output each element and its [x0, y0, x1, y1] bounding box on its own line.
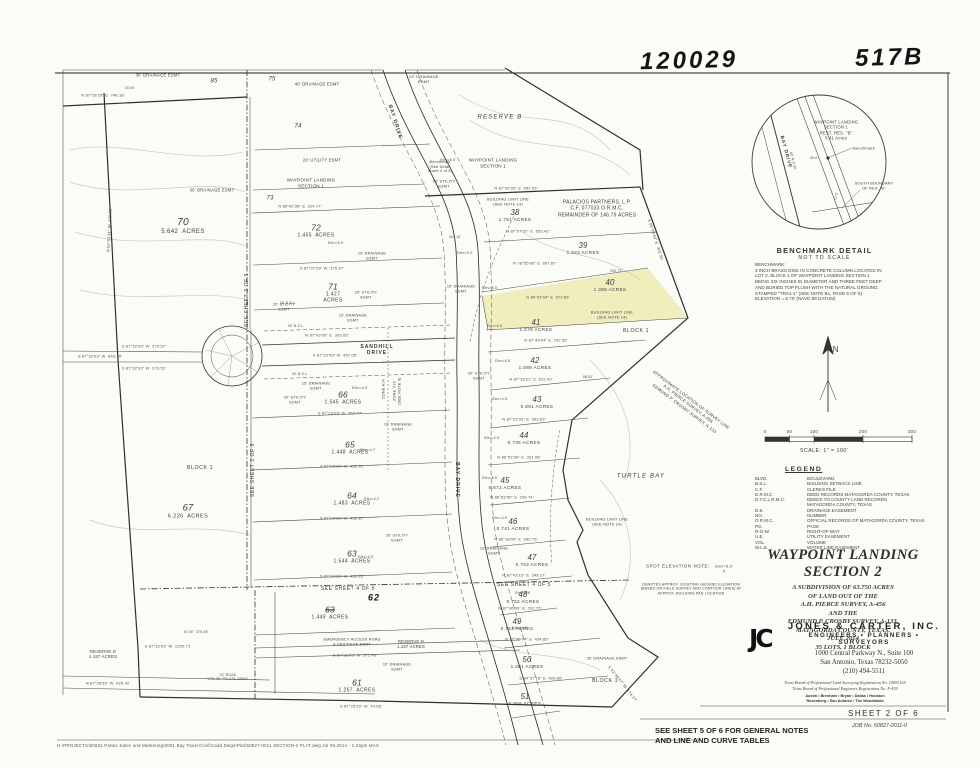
map-label: WAYPOINT LANDING SECTION 1 — [469, 157, 518, 168]
map-label: SEE SHEET 3 OF 5 — [244, 273, 250, 327]
legend-rows: BLVD.BOULEVARDB.S.L.BUILDING SETBACK LIN… — [755, 476, 940, 550]
benchmark-detail-subtitle: NOT TO SCALE — [752, 255, 897, 261]
map-label: Elev=6.5' — [495, 359, 511, 363]
lot-acreage: 1.323 ACRES — [567, 250, 600, 256]
map-label: 20' UTILITY ESMT — [468, 371, 490, 380]
map-label: WAYPOINT LANDING SECTION 1 REST. RES. "B… — [814, 120, 859, 141]
map-label: 30' DRAINAGE ESMT — [190, 187, 235, 192]
plat-title: WAYPOINT LANDING SECTION 2 — [742, 547, 944, 581]
map-label: N 87°42'26" E 652.05' — [494, 187, 537, 192]
lot-label: 381.751 ACRES — [499, 209, 532, 223]
map-label: 75 — [268, 76, 275, 84]
map-label: Elev=4.5' — [492, 397, 508, 401]
benchmark-detail-title: BENCHMARK DETAIL — [752, 246, 897, 255]
map-label: RESERVE B — [477, 114, 522, 122]
lot-number: 41 — [520, 319, 553, 327]
map-label: 25' B.S.L. — [292, 372, 309, 376]
map-label: 35' DRAINAGE ESMT — [587, 657, 628, 662]
map-label: Elev=6.3' X — [715, 564, 732, 573]
map-label: N 87°36'09" E 292.75' — [498, 607, 541, 612]
lot-acreage: 1.578 ACRES — [520, 327, 553, 333]
map-label: 30' DRAINAGE ESMT — [136, 72, 181, 77]
map-label: S 87°23'29" W 452.87' — [320, 517, 364, 522]
map-label: N 87°43'04" E 702.55' — [524, 339, 567, 344]
legend-abbr: D.T.C.L.R.M.C. — [755, 497, 807, 508]
file-path-footer: H:\PROJECTS\50832 Pattas Sales and Marke… — [57, 743, 379, 748]
lot-acreage: 1.267 ACRES — [338, 687, 375, 693]
map-label: 20' UTILITY ESMT — [284, 395, 306, 404]
lot-number: 46 — [497, 518, 530, 526]
lot-acreage: 0.881 ACRES — [521, 404, 554, 410]
job-number: JOB No. 50827-0011-0 — [852, 723, 907, 729]
lot-label: 490.751 ACRES — [501, 618, 534, 632]
map-label: 263.13' — [449, 235, 461, 239]
map-label: N — [833, 345, 839, 355]
scale-tick: 100 — [810, 429, 818, 435]
map-label: 20' B.S.L. — [280, 301, 297, 305]
lot-number: 63 — [311, 605, 348, 614]
map-label: BUILDING LIMIT LINE (SEE NOTE 14) — [487, 197, 529, 206]
map-label: APPROXIMATE LOCATION OF SURVEY LINE A.H.… — [645, 369, 730, 439]
map-label: 40.00' 376.55' — [183, 630, 208, 634]
map-label: 25' B.S.L. — [288, 324, 305, 328]
lot-acreage: 1.427 ACRES — [323, 291, 342, 304]
lot-label: 631.449 ACRES — [311, 605, 348, 620]
map-label: 10' DRAINAGE ESMT — [383, 662, 411, 671]
lot-label: 661.545 ACRES — [324, 390, 361, 405]
firm-block: JC JONES & CARTER, INC. ENGINEERS • PLAN… — [745, 621, 945, 704]
map-label: Elev=6.5' — [440, 158, 456, 162]
map-label: 73 — [266, 195, 273, 203]
scale-tick: 50 — [787, 429, 793, 435]
map-label: RESERVE D 1.187 ACRES — [89, 649, 117, 660]
lot-acreage: 0.751 ACRES — [501, 626, 534, 632]
map-label: S 87°25'29" W 74.58' — [340, 705, 382, 710]
map-label: ZONE V19 (SEE NOTE 9) — [392, 377, 401, 404]
map-label: PALACIOS PARTNERS, L.P. C.F. 077033 O.R.… — [558, 200, 636, 219]
map-label: 45.6' — [810, 156, 818, 160]
map-label: Elev=6.3' — [457, 251, 473, 255]
map-label: N 87°07'37" E 653.42' — [506, 230, 549, 235]
see-sheet-note: SEE SHEET 5 OF 6 FOR GENERAL NOTES AND L… — [655, 726, 808, 746]
map-label: N 87°28'29" E 748.18' — [81, 94, 124, 99]
lot-number: 67 — [168, 504, 208, 514]
legend: LEGEND BLVD.BOULEVARDB.S.L.BUILDING SETB… — [755, 466, 940, 550]
map-label: N 87°36'04" E 434.85' — [505, 638, 548, 643]
lot-label: 430.881 ACRES — [521, 396, 554, 410]
lot-acreage: 1.448 ACRES — [331, 449, 368, 455]
lot-acreage: 1.301 ACRES — [511, 664, 544, 670]
firm-cities-2: Rosenberg • San Antonio • The Woodlands — [745, 699, 945, 704]
lot-label: 401.388 ACRES — [594, 279, 627, 293]
scale-caption: SCALE: 1" = 100' — [800, 448, 848, 454]
map-label: 62 — [368, 592, 380, 603]
map-label: ZONE A14 — [382, 379, 387, 399]
lot-acreage: 1.455 ACRES — [297, 232, 334, 238]
lot-acreage: 0.736 ACRES — [508, 440, 541, 446]
lot-number: 48 — [507, 591, 540, 599]
lot-number: 44 — [508, 432, 541, 440]
lot-label: 711.427 ACRES — [323, 282, 342, 303]
lot-acreage: 1.545 ACRES — [324, 399, 361, 405]
map-label: Elev=6.5' — [328, 241, 344, 245]
lot-number: 40 — [594, 279, 627, 287]
map-label: 10' DRAINAGE ESMT — [384, 422, 412, 431]
lot-label: 676.226 ACRES — [168, 504, 208, 521]
lot-label: 631.544 ACRES — [333, 549, 370, 564]
benchmark-detail-heading: BENCHMARK DETAIL NOT TO SCALE — [752, 246, 897, 261]
map-label: N 86°18'09" E 330.76' — [494, 538, 537, 543]
map-label: N 87°28'36" W 625.42' — [86, 682, 131, 687]
map-label: SEE SHEET 4 OF 5 — [321, 586, 375, 592]
legend-def: DEEDS TO COUNTY LAND RECORDS MATAGORDA C… — [807, 497, 940, 508]
lot-label: 721.455 ACRES — [297, 223, 334, 238]
lot-label: 450.672 ACRES — [489, 477, 522, 491]
lot-number: 63 — [333, 549, 370, 558]
lot-acreage: 0.753 ACRES — [516, 562, 549, 568]
map-label: Benchmark — [853, 146, 875, 151]
lot-acreage: 1.388 ACRES — [594, 287, 627, 293]
lot-number: 42 — [519, 357, 552, 365]
lot-number: 64 — [333, 491, 370, 500]
map-label: N 87°03'03" E 393.05' — [305, 334, 348, 339]
lot-acreage: 0.752 ACRES — [507, 599, 540, 605]
map-label: N 02°51'41" W 439.31' — [106, 208, 113, 253]
legend-row: D.T.C.L.R.M.C.DEEDS TO COUNTY LAND RECOR… — [755, 497, 940, 508]
map-label: SEE SHEET 4 OF 5 — [497, 582, 551, 588]
lot-label: 510.968 ACRES — [509, 693, 542, 707]
map-label: BUILDING LIMIT LINE (SEE NOTE 14) — [591, 310, 633, 319]
map-label: S 87°32'03" W 279.51' — [122, 367, 166, 372]
map-label: 10' DRAINAGE ESMT — [480, 546, 508, 555]
map-label: RESERVE D 1.187 ACRES — [397, 639, 425, 650]
map-label: 20' UTILITY ESMT — [355, 290, 377, 299]
lot-label: 641.483 ACRES — [333, 491, 370, 506]
lot-label: 470.753 ACRES — [516, 554, 549, 568]
map-label: BAY DRIVE — [454, 462, 460, 498]
map-label: 74 — [294, 123, 301, 131]
map-label: BUILDING LIMIT LINE (SEE NOTE 14) — [586, 517, 628, 526]
lot-label: 705.642 ACRES — [161, 218, 205, 236]
lot-number: 72 — [297, 223, 334, 232]
map-label: Elev=6.5' — [487, 324, 503, 328]
map-label: N 86°53'50" E 299.74' — [490, 496, 533, 501]
lot-number: 49 — [501, 618, 534, 626]
map-label: N 86°54'04" E 679.85' — [526, 296, 569, 301]
lot-number: 61 — [338, 678, 375, 687]
firm-phone: (210) 494-5511 — [783, 668, 945, 677]
scale-tick: 300 — [908, 429, 916, 435]
map-label: SEE SHEET 3 OF 5 — [250, 443, 256, 497]
map-label: 15.00' — [125, 86, 135, 90]
scale-tick: 200 — [859, 429, 867, 435]
map-label: S 87°32'03" W 279.57' — [122, 345, 166, 350]
map-label: S 87°32'03" W 371.45' — [333, 654, 377, 659]
map-label: 32' ROAD VOL.35, PG.178, DRMC — [208, 673, 249, 682]
map-label: S 87°32'03" W 1250.71' — [145, 645, 192, 650]
map-label: Elev=4.5' — [484, 436, 500, 440]
map-label: 85 — [210, 78, 217, 86]
map-label: 20' UTILITY ESMT — [433, 179, 455, 188]
lot-label: 611.267 ACRES — [338, 678, 375, 693]
lot-number: 65 — [331, 440, 368, 449]
map-label: 10' DRAINAGE ESMT — [339, 313, 367, 322]
map-label: S 87°03'39" W 452.91' — [320, 465, 364, 470]
lot-acreage: 0.672 ACRES — [489, 485, 522, 491]
sheet-number: SHEET 2 OF 6 — [848, 709, 919, 718]
lot-acreage: 0.741 ACRES — [497, 526, 530, 532]
map-label: S 87°32'03" W 843.36' — [78, 355, 122, 360]
map-label: 22' DRAINAGE ESMT — [409, 74, 439, 84]
map-label: TURTLE BAY — [617, 473, 665, 481]
lot-label: 460.741 ACRES — [497, 518, 530, 532]
map-label: SPOT ELEVATION NOTE: — [646, 563, 710, 569]
firm-tagline: ENGINEERS • PLANNERS • SURVEYORS — [783, 632, 945, 646]
plat-sheet: { "stamps": { "left": "120029", "right":… — [0, 0, 980, 768]
map-label: S 84°37'16" E 429.86' — [519, 677, 562, 682]
lot-label: 411.578 ACRES — [520, 319, 553, 333]
map-label: N 87°18'21" E 612.03' — [509, 378, 552, 383]
lot-number: 71 — [323, 282, 342, 291]
map-label: S 87°07'29" W 375.97' — [300, 267, 344, 272]
lot-label: 651.448 ACRES — [331, 440, 368, 455]
map-label: BLOCK 1 — [623, 328, 649, 335]
map-label: 20' UTILITY ESMT — [386, 533, 408, 542]
map-label: N 87°29'31" E 353.53' — [502, 418, 545, 423]
map-label: N 87°43'13" E 348.27' — [502, 574, 545, 579]
lot-number: 50 — [511, 656, 544, 664]
map-label: N 85°42'36" E 314.77' — [278, 205, 321, 210]
lot-number: 47 — [516, 554, 549, 562]
firm-name: JONES & CARTER, INC. — [783, 621, 945, 632]
firm-registration-2: Texas Board of Professional Engineers Re… — [745, 686, 945, 691]
map-label: SOUTH BOUNDARY OF RES. "B" — [855, 181, 894, 190]
map-label: 15' DRAINAGE ESMT — [302, 381, 330, 390]
lot-acreage: 1.544 ACRES — [333, 558, 370, 564]
scale-tick: 0 — [764, 429, 767, 435]
benchmark-note: BENCHMARK: 3 INCH BRASS DISK IN CONCRETE… — [755, 262, 930, 302]
lot-label: 440.736 ACRES — [508, 432, 541, 446]
lot-number: 51 — [509, 693, 542, 701]
lot-number: 38 — [499, 209, 532, 217]
lot-acreage: 0.968 ACRES — [509, 701, 542, 707]
map-label: 21.6' — [833, 192, 838, 200]
map-label: S 05°08'44" E 302.56' — [646, 219, 664, 262]
map-label: WAYPOINT LANDING SECTION 1 — [287, 177, 336, 188]
map-label: S 87°23'29" W 452.77' — [318, 412, 362, 417]
lot-label: 480.752 ACRES — [507, 591, 540, 605]
map-label: 98.52' — [583, 375, 593, 379]
map-label: SANDHILL DRIVE — [360, 344, 393, 357]
firm-address2: San Antonio, Texas 78232-5050 — [783, 659, 945, 668]
map-label: N 86°53'30" E 331.58' — [497, 456, 540, 461]
firm-address1: 1000 Central Parkway N., Suite 100 — [783, 650, 945, 659]
lot-number: 45 — [489, 477, 522, 485]
jones-carter-logo: JC — [749, 624, 771, 653]
map-label: 10' DRAINAGE ESMT — [358, 251, 386, 260]
lot-number: 66 — [324, 390, 361, 399]
map-label: N 78°55'06" E 657.87' — [513, 262, 556, 267]
lot-acreage: 1.089 ACRES — [519, 365, 552, 371]
map-label: 10' DRAINAGE ESMT — [447, 284, 475, 293]
lot-number: 39 — [567, 242, 600, 250]
lot-acreage: 1.483 ACRES — [333, 500, 370, 506]
map-label: 20' UTILITY ESMT — [303, 157, 341, 162]
map-label: S 87°32'03" W 457.05' — [313, 354, 357, 359]
map-label: 40' DRAINAGE ESMT — [295, 81, 340, 86]
lot-acreage: 1.751 ACRES — [499, 217, 532, 223]
lot-label: 391.323 ACRES — [567, 242, 600, 256]
map-label: Elev=5.5' — [482, 286, 498, 290]
map-label: 343.73' — [610, 269, 622, 273]
legend-title: LEGEND — [785, 466, 940, 473]
map-label: S 87°23'29" W 452.85' — [320, 575, 364, 580]
map-label: BLOCK 1 — [187, 465, 213, 472]
lot-number: 43 — [521, 396, 554, 404]
lot-label: 501.301 ACRES — [511, 656, 544, 670]
map-label: DENOTES APPROX. EXISTING GROUND ELEVATIO… — [641, 582, 742, 595]
lot-number: 70 — [161, 218, 205, 229]
lot-acreage: 1.449 ACRES — [311, 614, 348, 620]
map-label: EMERGENCY ACCESS ROAD & DRAINAGE ESMT — [323, 637, 380, 646]
lot-acreage: 5.642 ACRES — [161, 229, 205, 237]
map-label: BAY DRIVE — [387, 104, 404, 140]
lot-label: 421.089 ACRES — [519, 357, 552, 371]
lot-acreage: 6.226 ACRES — [168, 513, 208, 520]
